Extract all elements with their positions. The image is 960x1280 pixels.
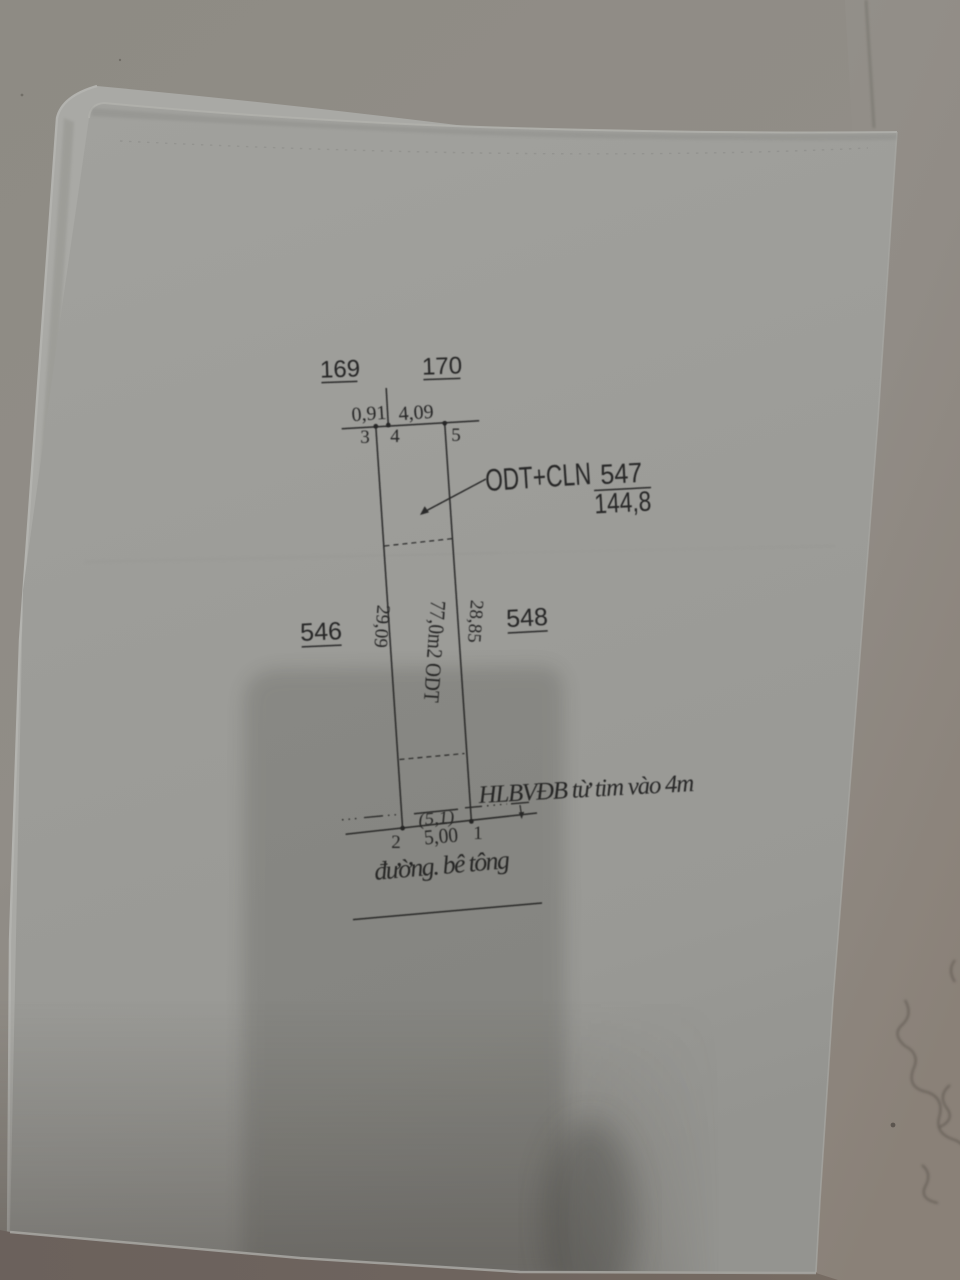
svg-text:28,85: 28,85 [463,599,487,643]
svg-text:29,09: 29,09 [370,604,394,648]
svg-text:4: 4 [390,426,400,447]
svg-text:5: 5 [451,425,461,446]
svg-text:546: 546 [300,617,343,647]
svg-text:4,09: 4,09 [398,401,434,425]
svg-text:547: 547 [599,457,643,490]
svg-text:0,91: 0,91 [351,402,387,426]
svg-text:548: 548 [505,603,548,633]
svg-text:3: 3 [360,427,370,448]
svg-text:ODT+CLN: ODT+CLN [484,456,592,498]
svg-text:170: 170 [422,352,463,380]
svg-text:169: 169 [320,355,361,383]
svg-text:144,8: 144,8 [593,486,652,520]
